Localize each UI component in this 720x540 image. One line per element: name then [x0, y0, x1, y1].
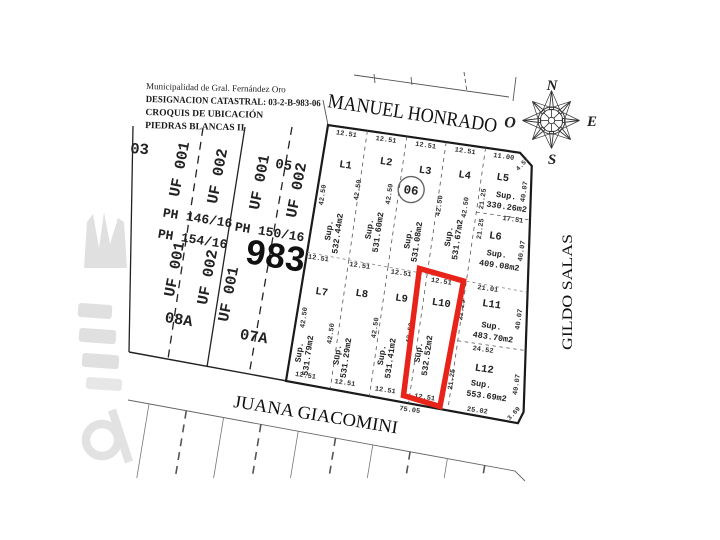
svg-text:L6: L6	[488, 230, 502, 244]
svg-text:L7: L7	[314, 286, 328, 300]
svg-text:L5: L5	[496, 172, 510, 186]
svg-text:N: N	[546, 78, 559, 94]
svg-text:03: 03	[130, 140, 150, 159]
svg-text:L9: L9	[394, 292, 408, 306]
svg-text:L1: L1	[338, 159, 352, 173]
svg-text:L3: L3	[418, 165, 432, 179]
svg-text:GILDO SALAS: GILDO SALAS	[560, 234, 576, 350]
svg-text:L8: L8	[355, 288, 369, 302]
svg-text:E: E	[586, 114, 597, 130]
svg-text:O: O	[504, 115, 516, 132]
svg-text:S: S	[548, 152, 556, 168]
svg-text:L4: L4	[457, 169, 471, 183]
svg-text:05: 05	[274, 157, 293, 175]
svg-text:L2: L2	[379, 156, 393, 170]
svg-text:06: 06	[403, 183, 420, 199]
